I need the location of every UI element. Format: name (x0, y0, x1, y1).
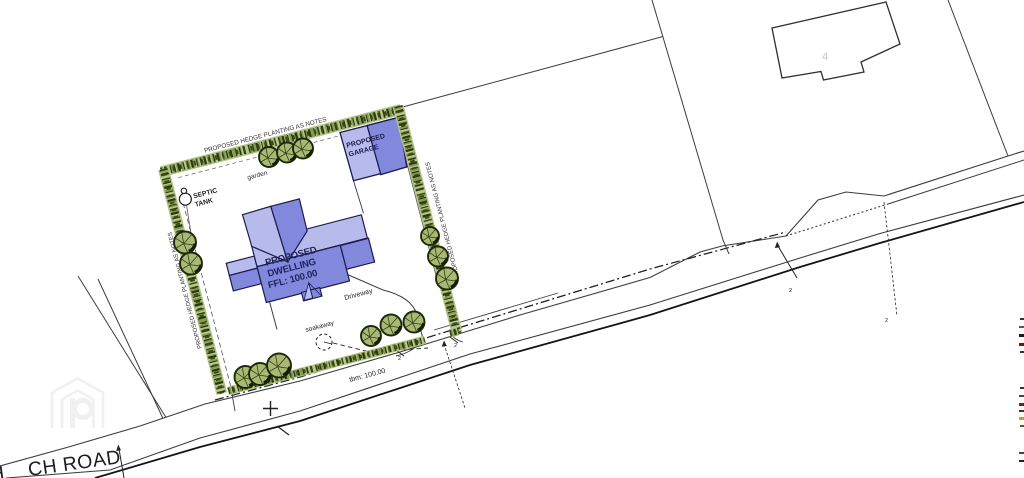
svg-text:2: 2 (398, 356, 401, 362)
svg-text:4: 4 (822, 51, 828, 63)
svg-text:2: 2 (885, 318, 888, 324)
svg-text:2: 2 (454, 343, 457, 349)
svg-text:2: 2 (789, 288, 792, 294)
